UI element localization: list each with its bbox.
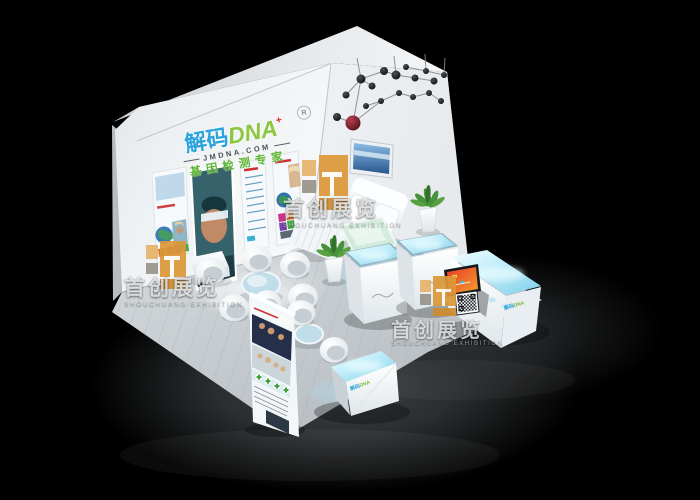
watermark-logo-block <box>146 245 158 259</box>
scene-graphics <box>0 0 700 500</box>
watermark-text-cn: 首创展览 <box>391 321 483 341</box>
brand-plus-mark: + <box>275 115 283 127</box>
watermark-left: 首创展览 SHOUCHUANG EXHIBITION <box>124 241 244 311</box>
egg-chair <box>280 252 310 280</box>
watermark-text-en: SHOUCHUANG EXHIBITION <box>283 223 402 230</box>
glass-table <box>295 325 323 344</box>
egg-chair <box>320 337 349 363</box>
poster-text-list <box>240 159 269 253</box>
watermark-logo-block <box>302 180 316 194</box>
potted-plant-right <box>410 185 446 236</box>
booth-3d-render: 解码DNA+ R JMDNA.COM 基因检测专家 解码DNA 解码DNA 首创… <box>0 0 700 500</box>
watermark-logo-block <box>420 280 431 292</box>
egg-chair <box>242 246 272 274</box>
watermark-text-en: SHOUCHUANG EXHIBITION <box>124 302 243 309</box>
watermark-logo-slit <box>170 259 174 276</box>
watermark-logo-icon <box>420 276 456 322</box>
chandelier <box>333 54 447 131</box>
watermark-text-en: SHOUCHUANG EXHIBITION <box>391 341 504 347</box>
watermark-logo-slit <box>442 292 445 307</box>
watermark-logo-block <box>433 308 456 316</box>
chandelier-red-sphere <box>346 116 361 131</box>
watermark-logo-slit <box>330 176 334 196</box>
watermark-text-cn: 首创展览 <box>124 278 220 299</box>
watermark-logo-block <box>146 263 158 275</box>
watermark-text-cn: 首创展览 <box>283 199 379 220</box>
watermark-logo-block <box>420 294 431 304</box>
watermark-top-center: 首创展览 SHOUCHUANG EXHIBITION <box>283 155 403 231</box>
watermark-bottom-right: 首创展览 SHOUCHUANG EXHIBITION <box>391 276 506 346</box>
watermark-logo-block <box>302 160 316 176</box>
